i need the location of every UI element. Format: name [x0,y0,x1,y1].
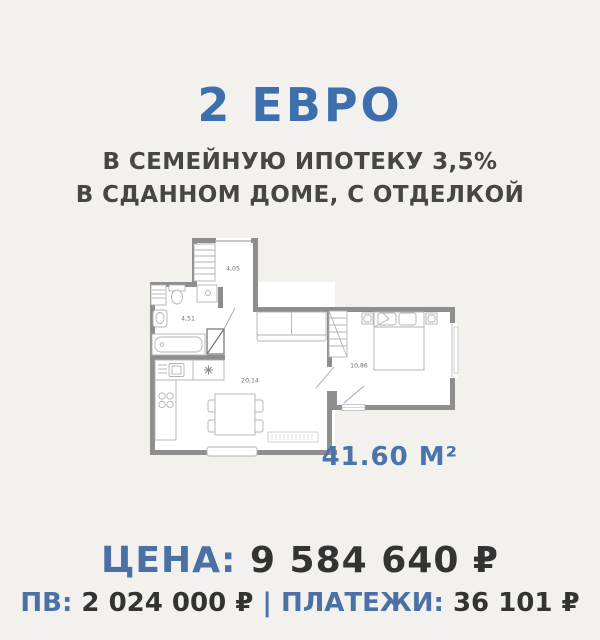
fridge-spot [193,360,224,380]
bathtub [152,334,205,355]
nightstand [362,313,373,324]
price-label: ЦЕНА: [101,540,236,581]
living-window [207,447,257,456]
subtitle-line-2: В СДАННОМ ДОМЕ, С ОТДЕЛКОЙ [0,179,600,212]
price-value: 9 584 640 ₽ [250,540,499,581]
financing-line: ПВ: 2 024 000 ₽ | ПЛАТЕЖИ: 36 101 ₽ [0,588,600,618]
hall-wardrobe [194,244,215,281]
downpayment-value: 2 024 000 ₽ [81,588,253,618]
radiator [268,432,318,442]
room-area-label: 4,05 [226,266,240,273]
room-area-label: 10,86 [350,363,368,370]
kitchen-counter-sink [155,360,193,380]
price-line: ЦЕНА: 9 584 640 ₽ [0,540,600,581]
sofa [257,312,326,341]
bathroom-sink [153,310,167,327]
stove [155,380,176,440]
shower-unit [197,285,217,302]
separator: | [262,588,272,618]
bedroom-wardrobe [329,311,347,357]
room-area-label: 4,51 [181,316,195,323]
payment-value: 36 101 ₽ [453,588,580,618]
floor-plan: 4,05 4,51 20,14 10,86 [138,228,468,468]
room-area-label: 20,14 [241,378,259,385]
downpayment-label: ПВ: [20,588,72,618]
page-title: 2 ЕВРО [0,78,600,132]
dining-set [208,394,263,435]
total-area-label: 41.60 М² [321,442,458,472]
subtitle: В СЕМЕЙНУЮ ИПОТЕКУ 3,5% В СДАННОМ ДОМЕ, … [0,146,600,212]
washing-machine [151,285,166,305]
nightstand [426,313,437,324]
dining-table [215,394,255,435]
subtitle-line-1: В СЕМЕЙНУЮ ИПОТЕКУ 3,5% [0,146,600,179]
floor-plan-drawing: 4,05 4,51 20,14 10,86 [138,228,468,468]
payment-label: ПЛАТЕЖИ: [281,588,444,618]
pillow [399,313,416,325]
